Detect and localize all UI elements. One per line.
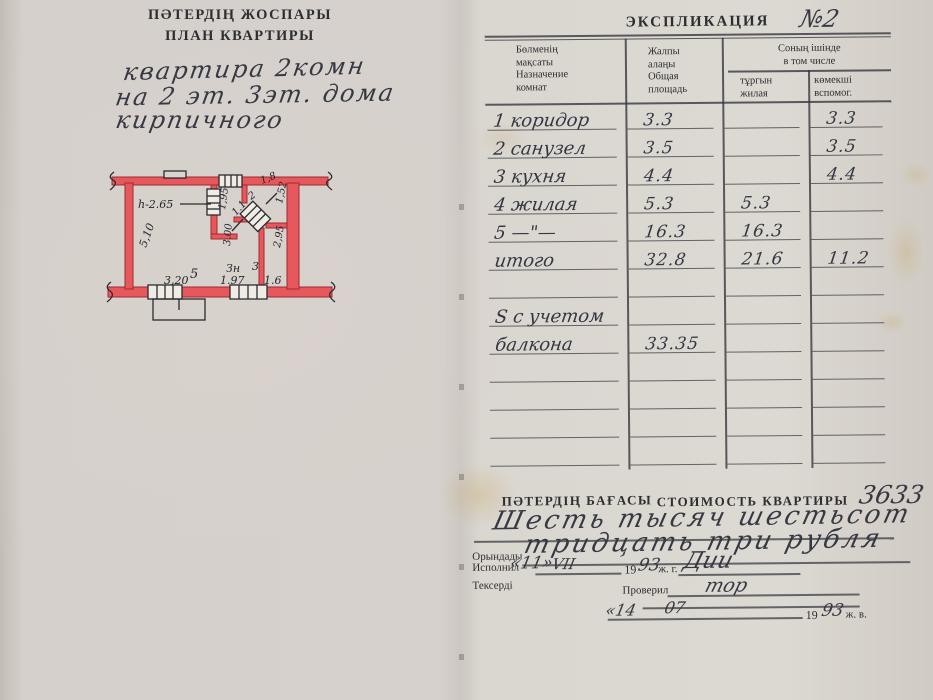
table-row: балкона 33.35 [487, 327, 893, 359]
header-purpose-line: Назначение [516, 69, 568, 82]
living-area-text: 5.3 [740, 193, 773, 213]
room-name-text: 2 санузел [492, 138, 587, 160]
cell-total-area [628, 385, 725, 414]
cell-room-name [488, 414, 628, 443]
executed-day: «11» [508, 553, 555, 573]
ruled-line [608, 617, 803, 620]
cell-room-name: балкона [487, 330, 627, 359]
table-row: итого 32.8 21.6 11.2 [487, 243, 893, 275]
table-row: 3 кухня 4.4 4.4 [486, 159, 892, 191]
cell-room-name [488, 358, 628, 387]
cell-living-area: 16.3 [723, 216, 809, 245]
cell-total-area: 32.8 [627, 245, 724, 274]
cell-room-name [487, 274, 627, 303]
room-name-text: 5 —"— [493, 222, 557, 244]
header-including: Соның ішінде в том числе [728, 42, 891, 68]
cell-aux-area [811, 439, 894, 468]
cell-living-area: 21.6 [724, 244, 810, 273]
checked-day: «14 [604, 600, 638, 619]
cell-total-area: 33.35 [627, 329, 724, 358]
ruled-line [668, 594, 860, 597]
living-area-text: 21.6 [740, 249, 784, 269]
header-total: Жалпы алаңы Общая площадь [648, 46, 687, 96]
total-area-text: 3.3 [642, 110, 675, 130]
table-row: 1 коридор 3.3 3.3 [485, 103, 891, 135]
table-row: S с учетом [487, 299, 893, 331]
cell-aux-area: 4.4 [809, 159, 892, 188]
year-printed-2: 19 [806, 608, 818, 623]
total-area-text: 33.35 [644, 334, 700, 354]
explication-number: №2 [797, 5, 842, 33]
cell-aux-area [811, 411, 894, 440]
header-purpose-line: мақсаты [516, 57, 568, 70]
document-photo: ПӘТЕРДІҢ ЖОСПАРЫ ПЛАН КВАРТИРЫ квартира … [0, 0, 933, 700]
header-total-line: площадь [648, 84, 687, 97]
cell-total-area: 3.3 [625, 105, 722, 134]
header-including-line: в том числе [728, 55, 891, 69]
aux-area-text: 11.2 [826, 248, 870, 268]
total-area-text: 4.4 [643, 166, 676, 186]
cell-aux-area [810, 355, 893, 384]
cell-aux-area [810, 299, 893, 328]
cell-room-name: 2 санузел [486, 134, 626, 163]
aux-area-text: 3.3 [825, 109, 858, 129]
header-total-line: алаңы [648, 59, 687, 72]
cell-aux-area [809, 215, 892, 244]
explication-title: ЭКСПЛИКАЦИЯ [626, 13, 770, 31]
total-area-text: 5.3 [643, 194, 676, 214]
cell-living-area [725, 440, 811, 469]
header-aux: көмекші вспомог. [814, 75, 852, 100]
room-name-text: 1 коридор [492, 110, 590, 132]
header-total-line: Жалпы [648, 46, 687, 59]
table-row: 4 жилая 5.3 5.3 [486, 187, 892, 219]
header-aux-line: вспомог. [814, 87, 852, 100]
cell-living-area [724, 300, 810, 329]
cell-total-area [627, 301, 724, 330]
room-name-text: 3 кухня [493, 166, 568, 188]
header-living-line: жилая [740, 88, 772, 101]
aux-area-text: 4.4 [826, 165, 859, 185]
total-area-text: 3.5 [642, 138, 675, 158]
cell-aux-area [809, 187, 892, 216]
cell-room-name: S с учетом [487, 302, 627, 331]
cell-total-area: 3.5 [626, 133, 723, 162]
total-area-text: 32.8 [643, 250, 687, 270]
header-total-line: Общая [648, 71, 687, 84]
ruled-line [535, 573, 621, 575]
cell-aux-area [811, 383, 894, 412]
year-suffix-2: ж. в. [846, 608, 867, 620]
cell-aux-area: 3.5 [809, 131, 892, 160]
year-suffix: ж. г. [658, 563, 677, 575]
cell-aux-area: 3.3 [808, 103, 891, 132]
table-row: 5 —"— 16.3 16.3 [486, 215, 892, 247]
cell-aux-area: 11.2 [810, 243, 893, 272]
room-name-text: балкона [494, 334, 574, 356]
table-row [487, 271, 893, 303]
header-purpose-line: Бөлменің [516, 44, 568, 57]
right-page: ЭКСПЛИКАЦИЯ №2 Бөлменің мақсаты Назначен… [0, 0, 933, 700]
cell-total-area [628, 413, 725, 442]
cell-room-name: 4 жилая [486, 190, 626, 219]
total-area-text: 16.3 [643, 222, 687, 242]
cell-living-area [724, 356, 810, 385]
cell-living-area [723, 160, 809, 189]
cell-room-name: 1 коридор [485, 106, 625, 135]
executed-month: VII [550, 555, 576, 573]
cell-total-area [627, 273, 724, 302]
cell-total-area [627, 357, 724, 386]
table-row [488, 439, 894, 471]
table-row [488, 383, 894, 415]
checked-year: 93 [820, 601, 846, 621]
aux-area-text: 3.5 [825, 137, 858, 157]
checked-month: 07 [663, 598, 687, 617]
executed-signature: Дии [681, 548, 737, 574]
cell-total-area: 4.4 [626, 161, 723, 190]
cell-room-name [488, 386, 628, 415]
table-row: 2 санузел 3.5 3.5 [486, 131, 892, 163]
header-aux-line: көмекші [814, 75, 852, 88]
header-living-line: тұргын [740, 75, 772, 88]
room-name-text: S с учетом [494, 306, 606, 328]
header-purpose: Бөлменің мақсаты Назначение комнат [516, 44, 569, 94]
cell-living-area [725, 384, 811, 413]
cell-living-area: 5.3 [723, 188, 809, 217]
room-name-text: 4 жилая [493, 194, 579, 216]
checked-signature: тор [702, 574, 750, 596]
year-printed: 19 [624, 562, 636, 577]
header-living: тұргын жилая [740, 75, 772, 100]
cell-room-name: 3 кухня [486, 162, 626, 191]
cell-living-area [723, 132, 809, 161]
cell-living-area [724, 272, 810, 301]
cell-room-name: 5 —"— [486, 218, 626, 247]
cell-total-area: 5.3 [626, 189, 723, 218]
room-name-text: итого [493, 250, 555, 272]
explication-table-body: 1 коридор 3.3 3.3 2 санузел 3.5 3.5 3 ку… [485, 103, 894, 471]
cell-total-area: 16.3 [626, 217, 723, 246]
table-row [488, 411, 894, 443]
cell-room-name: итого [487, 246, 627, 275]
checked-label-kk: Тексерді [472, 580, 512, 592]
cell-room-name [488, 442, 628, 471]
cell-aux-area [810, 327, 893, 356]
header-purpose-line: комнат [516, 82, 568, 95]
cell-total-area [628, 441, 725, 470]
table-row [488, 355, 894, 387]
cell-living-area [725, 412, 811, 441]
checked-label-ru: Проверил [622, 584, 668, 596]
cell-living-area [724, 328, 810, 357]
cell-living-area [722, 104, 808, 133]
living-area-text: 16.3 [740, 221, 784, 241]
cell-aux-area [810, 271, 893, 300]
